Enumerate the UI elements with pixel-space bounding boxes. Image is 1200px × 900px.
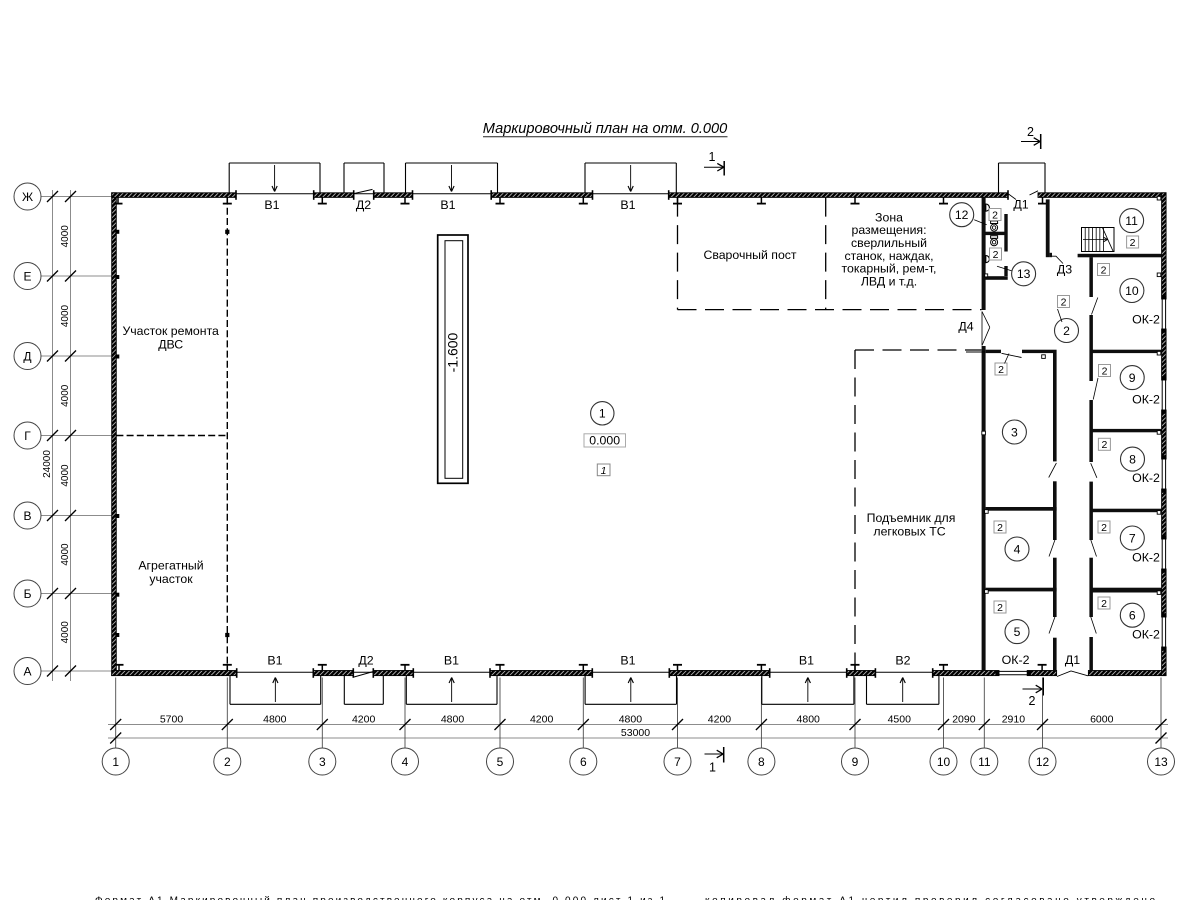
svg-text:2: 2 (1101, 264, 1107, 276)
svg-text:0.000: 0.000 (589, 434, 620, 448)
svg-text:ОК-2: ОК-2 (1132, 627, 1160, 641)
svg-text:В: В (23, 509, 31, 523)
svg-text:В1: В1 (440, 198, 455, 212)
svg-text:4800: 4800 (619, 713, 643, 725)
svg-text:12: 12 (1036, 755, 1050, 769)
svg-text:2: 2 (224, 755, 231, 769)
svg-text:Е: Е (23, 269, 31, 283)
svg-text:2: 2 (997, 522, 1003, 534)
svg-text:2: 2 (998, 364, 1004, 376)
svg-text:5: 5 (497, 755, 504, 769)
svg-text:-1.600: -1.600 (445, 332, 461, 372)
svg-text:Маркировочный план на отм. 0.0: Маркировочный план на отм. 0.000 (483, 121, 727, 137)
svg-text:9: 9 (852, 755, 859, 769)
svg-text:1: 1 (112, 755, 119, 769)
svg-text:Формат А1 Маркировочный план п: Формат А1 Маркировочный план производств… (95, 896, 665, 900)
svg-text:Д: Д (23, 349, 31, 363)
svg-text:ЛВД и т.д.: ЛВД и т.д. (861, 275, 917, 289)
svg-text:4000: 4000 (60, 543, 71, 566)
svg-text:ОК-2: ОК-2 (1132, 313, 1160, 327)
svg-text:2: 2 (1130, 237, 1136, 249)
svg-text:3: 3 (1011, 425, 1018, 439)
svg-text:53000: 53000 (621, 727, 650, 739)
svg-text:10: 10 (1125, 284, 1139, 298)
svg-text:В1: В1 (620, 198, 635, 212)
svg-text:4000: 4000 (60, 304, 71, 327)
svg-text:Б: Б (24, 587, 32, 601)
svg-text:2: 2 (1102, 365, 1108, 377)
svg-text:2: 2 (1029, 694, 1036, 708)
svg-text:ОК-2: ОК-2 (1132, 392, 1160, 406)
svg-text:В1: В1 (264, 198, 279, 212)
svg-text:4500: 4500 (888, 713, 912, 725)
svg-text:В1: В1 (444, 654, 459, 668)
svg-text:2: 2 (1063, 324, 1070, 338)
svg-text:2: 2 (1101, 522, 1107, 534)
svg-text:Г: Г (24, 429, 31, 443)
svg-text:4000: 4000 (60, 384, 71, 407)
svg-text:4000: 4000 (60, 225, 71, 248)
svg-text:5700: 5700 (160, 713, 184, 725)
svg-text:В1: В1 (620, 654, 635, 668)
svg-text:4: 4 (402, 755, 409, 769)
svg-text:1: 1 (601, 465, 607, 477)
svg-text:10: 10 (937, 755, 951, 769)
svg-text:6: 6 (1129, 609, 1136, 623)
svg-text:1: 1 (599, 407, 606, 421)
svg-text:Д2: Д2 (356, 198, 371, 212)
svg-text:Д4: Д4 (958, 320, 973, 334)
svg-text:8: 8 (758, 755, 765, 769)
svg-text:ОК-2: ОК-2 (1002, 653, 1030, 667)
svg-text:8: 8 (1129, 452, 1136, 466)
svg-text:Ж: Ж (22, 190, 33, 204)
svg-text:4800: 4800 (797, 713, 821, 725)
svg-text:участок: участок (149, 572, 193, 586)
svg-text:2: 2 (993, 249, 999, 261)
svg-text:А: А (23, 664, 31, 678)
svg-text:1: 1 (709, 761, 716, 775)
svg-text:Д2: Д2 (358, 654, 373, 668)
svg-text:4800: 4800 (263, 713, 287, 725)
svg-text:ДВС: ДВС (158, 337, 183, 351)
svg-text:2: 2 (1027, 125, 1034, 139)
svg-text:4000: 4000 (60, 621, 71, 644)
svg-text:4200: 4200 (708, 713, 732, 725)
svg-text:7: 7 (674, 755, 681, 769)
svg-text:5: 5 (1014, 625, 1021, 639)
svg-text:12: 12 (955, 208, 969, 222)
svg-text:4000: 4000 (60, 464, 71, 487)
svg-text:ОК-2: ОК-2 (1132, 550, 1160, 564)
svg-text:4: 4 (1014, 542, 1021, 556)
svg-text:В1: В1 (799, 654, 814, 668)
svg-text:Подъемник для: Подъемник для (867, 511, 956, 525)
svg-text:11: 11 (1125, 214, 1138, 228)
svg-text:2: 2 (1101, 598, 1107, 610)
svg-text:4800: 4800 (441, 713, 465, 725)
svg-text:24000: 24000 (42, 450, 53, 478)
svg-text:11: 11 (978, 755, 991, 769)
svg-text:2: 2 (1061, 296, 1067, 308)
svg-text:Сварочный пост: Сварочный пост (703, 248, 796, 262)
svg-text:2: 2 (992, 209, 998, 221)
svg-text:2: 2 (1101, 439, 1107, 451)
svg-text:Д1: Д1 (1065, 653, 1080, 667)
svg-text:легковых ТС: легковых ТС (873, 525, 945, 539)
svg-text:4200: 4200 (530, 713, 554, 725)
svg-text:ОК-2: ОК-2 (1132, 471, 1160, 485)
svg-text:2: 2 (997, 602, 1003, 614)
svg-text:1: 1 (709, 150, 716, 164)
svg-text:4200: 4200 (352, 713, 376, 725)
svg-text:7: 7 (1129, 531, 1136, 545)
svg-text:2910: 2910 (1002, 713, 1026, 725)
svg-text:Участок ремонта: Участок ремонта (122, 324, 219, 338)
svg-text:В1: В1 (267, 654, 282, 668)
svg-text:6000: 6000 (1090, 713, 1114, 725)
svg-text:копировал формат А1 чертил про: копировал формат А1 чертил проверил согл… (705, 895, 1155, 900)
svg-text:В2: В2 (895, 654, 910, 668)
svg-text:Д3: Д3 (1057, 263, 1072, 277)
svg-text:2090: 2090 (952, 713, 976, 725)
svg-text:3: 3 (319, 755, 326, 769)
svg-text:6: 6 (580, 755, 587, 769)
svg-text:9: 9 (1129, 371, 1136, 385)
svg-text:13: 13 (1154, 755, 1168, 769)
svg-text:13: 13 (1017, 267, 1031, 281)
svg-text:Агрегатный: Агрегатный (138, 558, 203, 572)
